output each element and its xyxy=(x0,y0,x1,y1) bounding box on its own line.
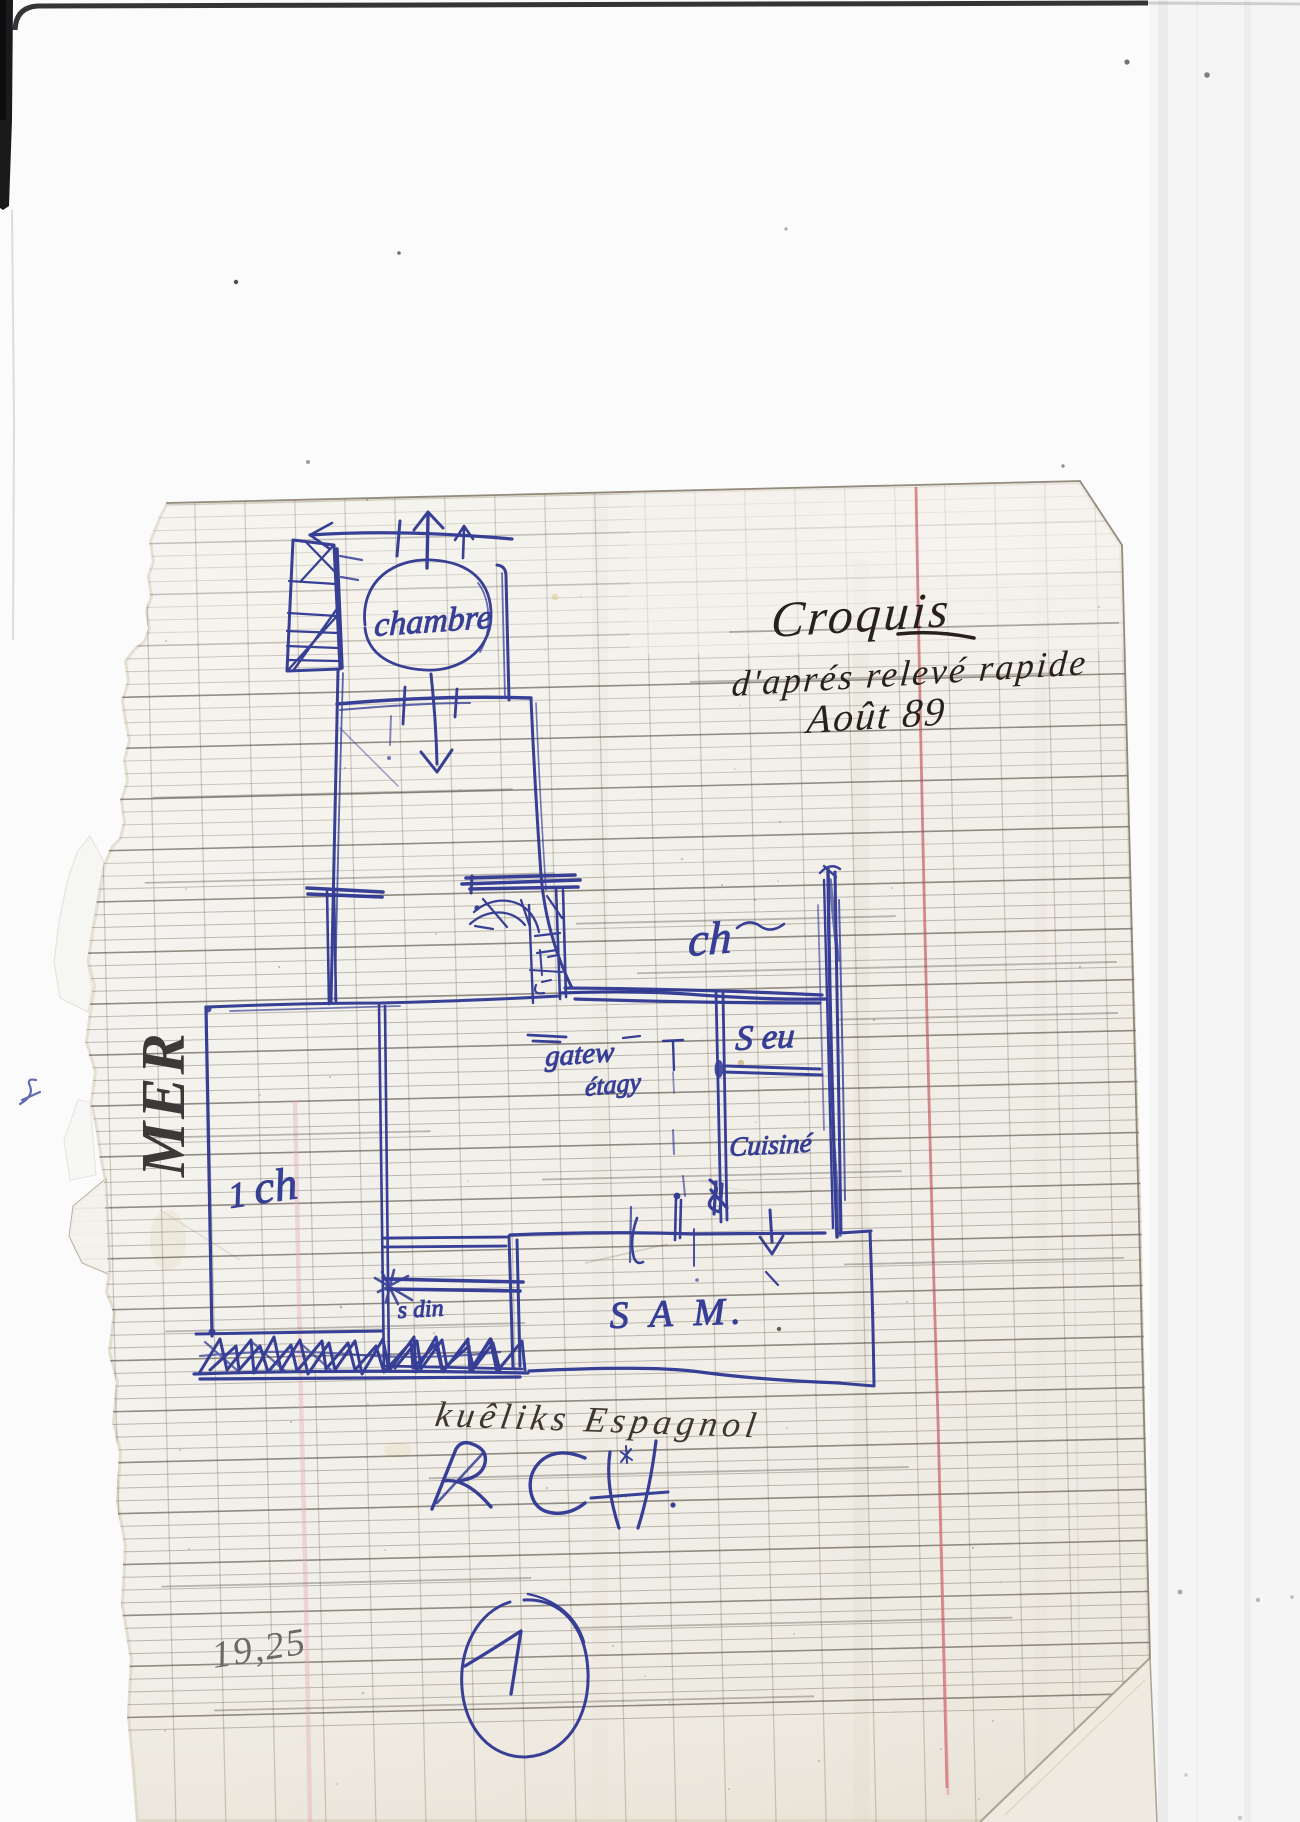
svg-text:étagy: étagy xyxy=(585,1067,641,1102)
svg-text:MER: MER xyxy=(130,1030,198,1178)
svg-text:Août 89: Août 89 xyxy=(802,688,948,742)
svg-text:Cuisiné: Cuisiné xyxy=(729,1128,814,1162)
svg-text:Croquis: Croquis xyxy=(769,581,953,648)
svg-text:S eu: S eu xyxy=(735,1016,796,1058)
svg-text:ch: ch xyxy=(688,911,732,966)
svg-text:s din: s din xyxy=(397,1296,444,1324)
svg-text:S A M.: S A M. xyxy=(609,1290,747,1337)
svg-text:ch: ch xyxy=(250,1157,300,1214)
